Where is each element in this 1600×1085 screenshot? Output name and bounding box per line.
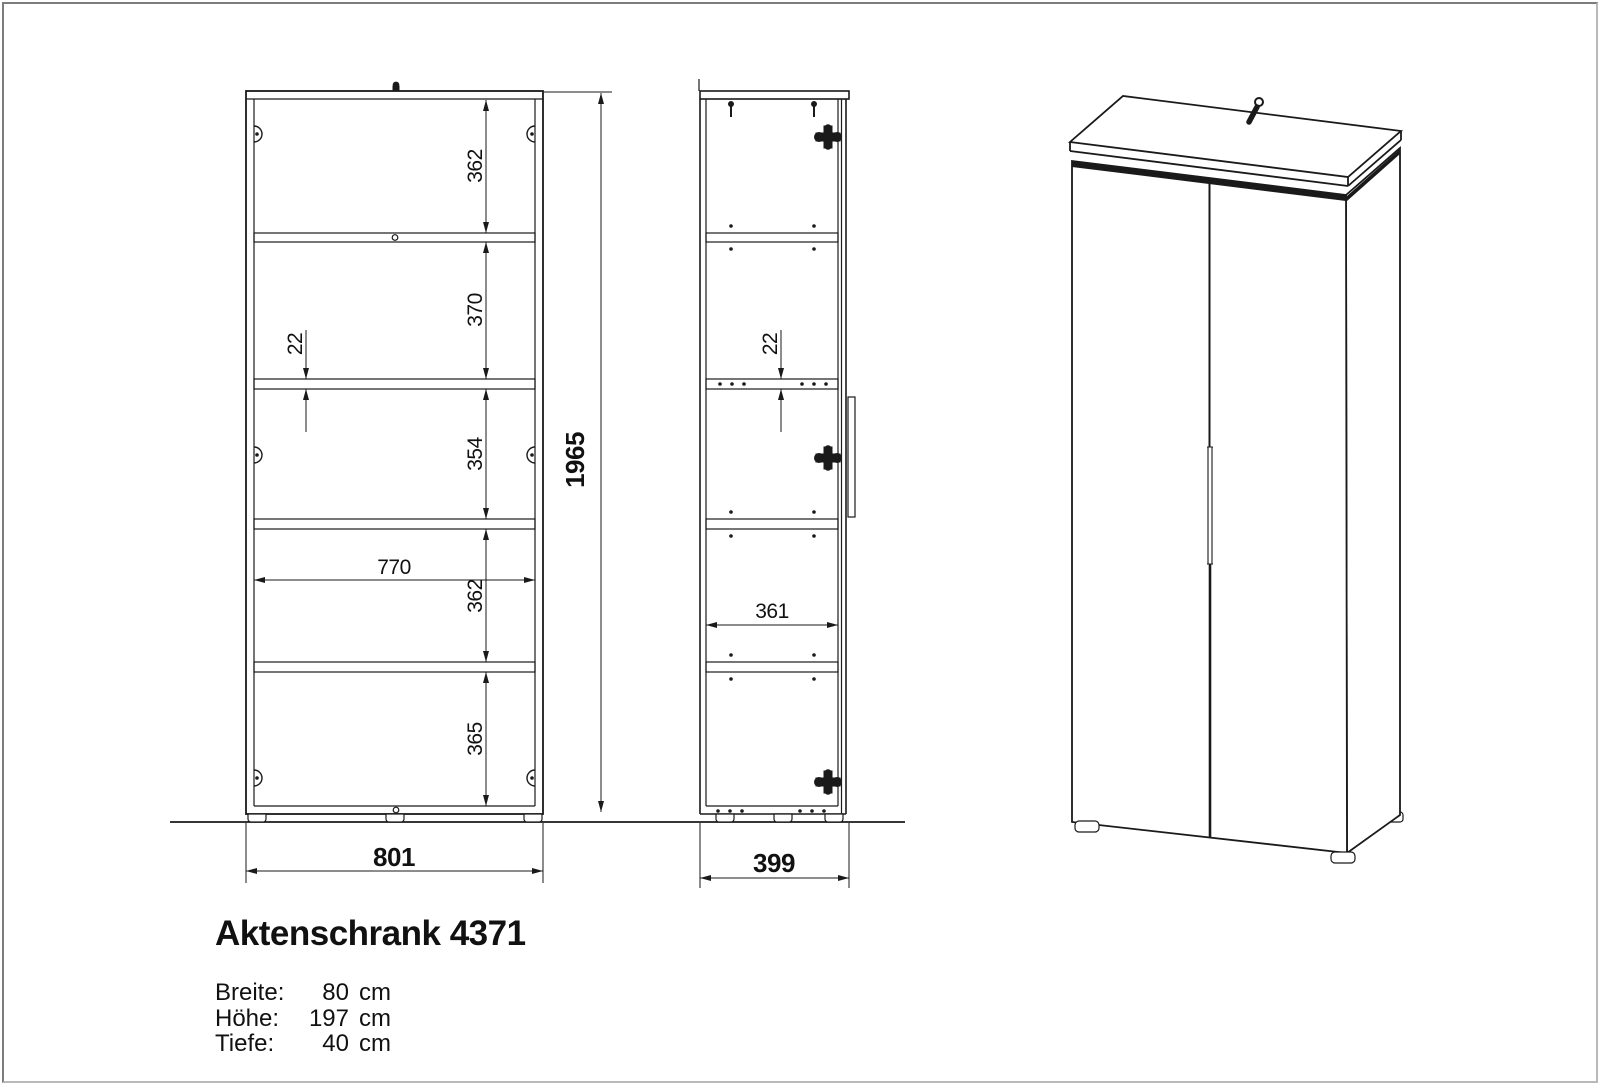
spec-value: 197 <box>303 1006 349 1032</box>
spec-label: Tiefe: <box>215 1031 303 1057</box>
dim-front-section-1: 362 <box>464 149 487 183</box>
dim-front-outer-width: 801 <box>373 842 415 872</box>
dim-front-section-3: 354 <box>464 436 487 470</box>
product-title: Aktenschrank 4371 <box>215 914 526 954</box>
spec-label: Breite: <box>215 980 303 1006</box>
spec-row-height: Höhe: 197 cm <box>215 1006 526 1032</box>
key-icon <box>393 82 400 91</box>
front-feet <box>248 814 542 822</box>
dim-front-total-height: 1965 <box>560 432 590 488</box>
door-handle-profile <box>848 397 855 517</box>
spec-unit: cm <box>359 1006 391 1032</box>
dim-front-shelf-thickness: 22 <box>284 333 307 355</box>
spec-label: Höhe: <box>215 1006 303 1032</box>
side-view <box>699 79 855 822</box>
spec-value: 40 <box>303 1031 349 1057</box>
spec-list: Breite: 80 cm Höhe: 197 cm Tiefe: 40 cm <box>215 980 526 1057</box>
dim-front-inner-width: 770 <box>377 556 411 579</box>
spec-row-width: Breite: 80 cm <box>215 980 526 1006</box>
spec-value: 80 <box>303 980 349 1006</box>
dim-side-outer-depth: 399 <box>753 848 795 878</box>
top-screws <box>728 101 817 117</box>
front-view <box>246 82 543 822</box>
bottom-cam-hole <box>393 807 399 813</box>
spec-unit: cm <box>359 1031 391 1057</box>
dim-side-inner-depth: 361 <box>755 600 789 623</box>
spec-row-depth: Tiefe: 40 cm <box>215 1031 526 1057</box>
technical-drawing-page: { "drawing": { "views": { "front": { "se… <box>0 0 1600 1085</box>
perspective-view <box>1070 96 1403 863</box>
title-block: Aktenschrank 4371 Breite: 80 cm Höhe: 19… <box>215 914 526 1057</box>
dim-front-section-4: 362 <box>464 579 487 613</box>
dim-front-section-2: 370 <box>464 293 487 327</box>
side-feet <box>716 814 843 822</box>
shelf-cam-hole <box>392 235 398 241</box>
dim-side-shelf-thickness: 22 <box>759 333 782 355</box>
dim-front-section-5: 365 <box>464 722 487 756</box>
spec-unit: cm <box>359 980 391 1006</box>
